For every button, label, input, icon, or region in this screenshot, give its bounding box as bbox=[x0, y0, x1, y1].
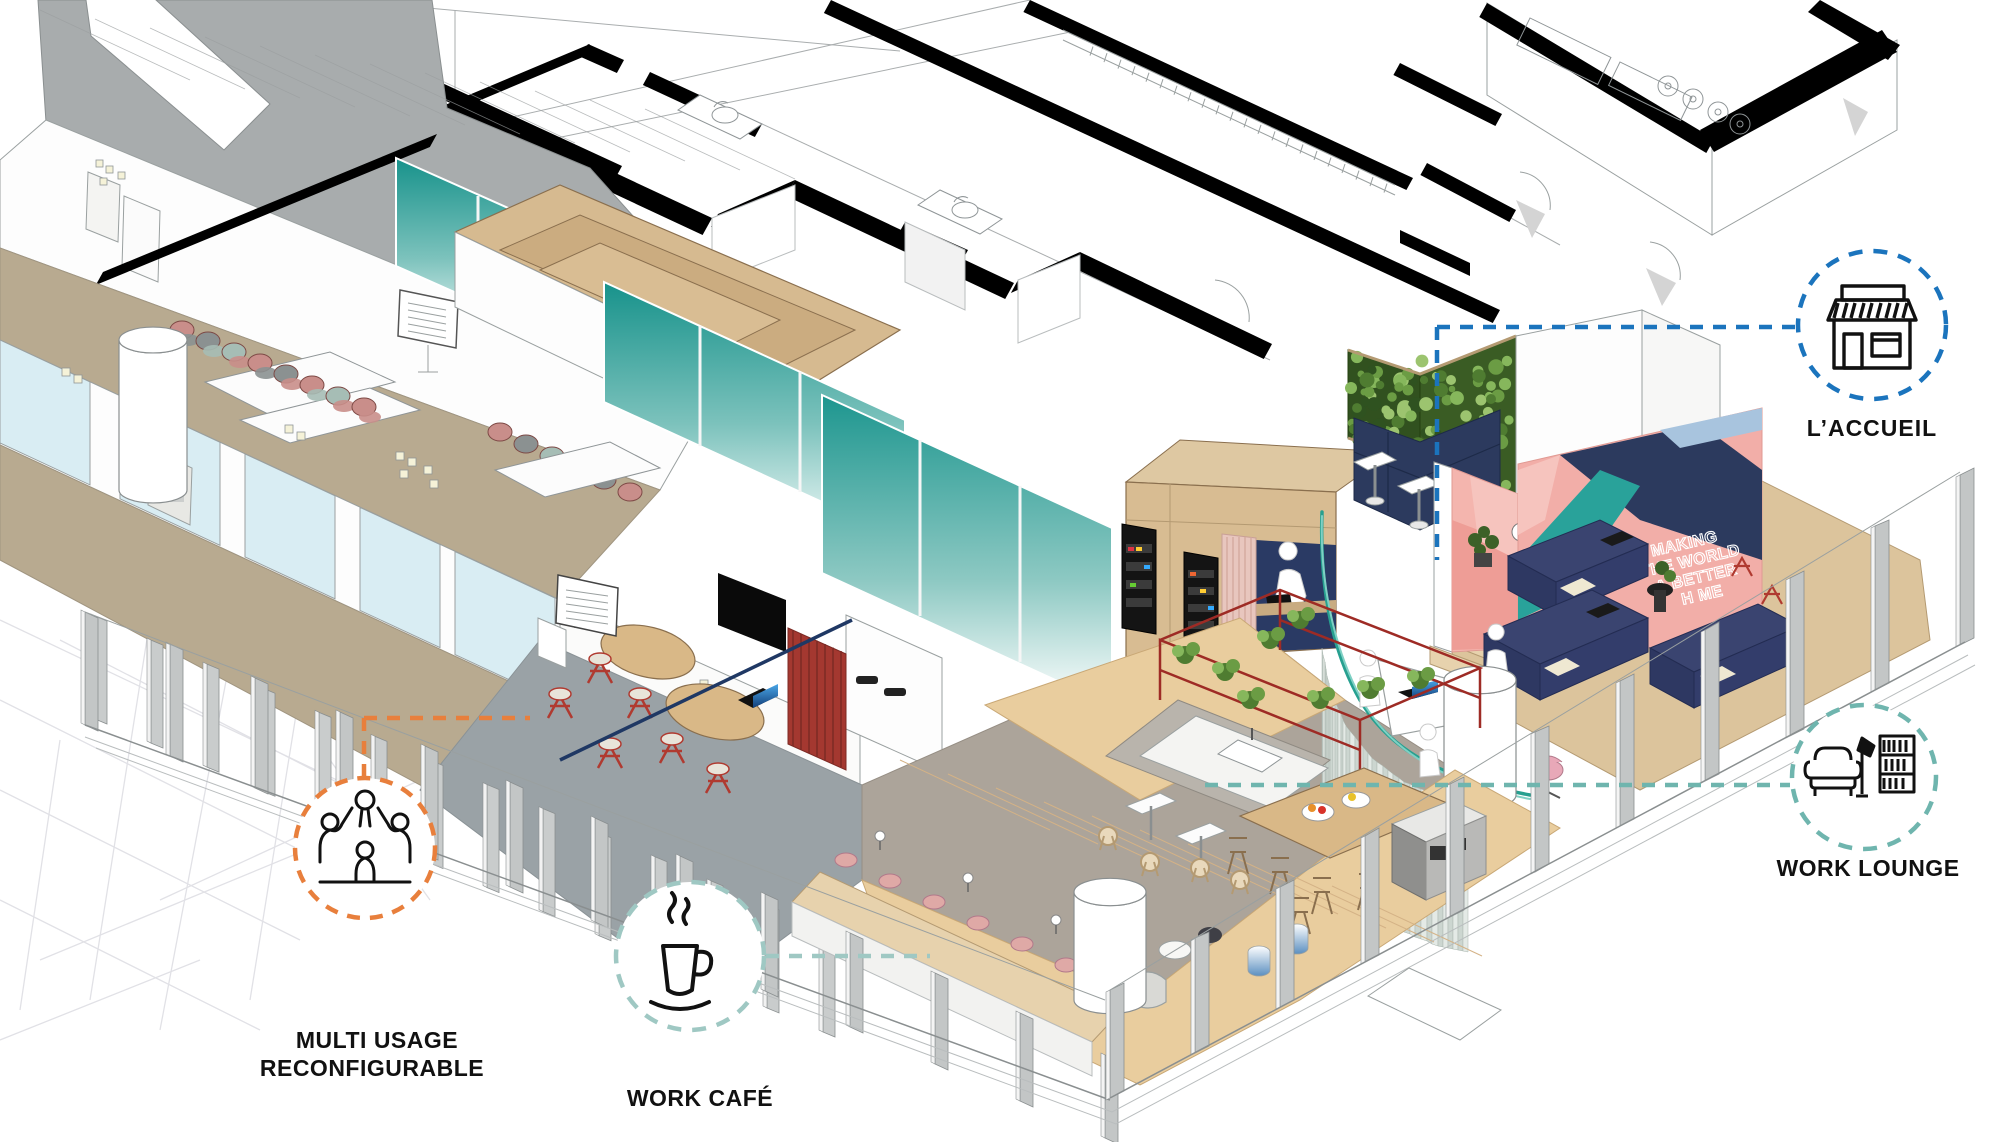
svg-text:RECONFIGURABLE: RECONFIGURABLE bbox=[260, 1055, 484, 1081]
svg-text:L’ACCUEIL: L’ACCUEIL bbox=[1807, 415, 1937, 441]
svg-text:WORK CAFÉ: WORK CAFÉ bbox=[627, 1084, 773, 1111]
svg-text:WORK LOUNGE: WORK LOUNGE bbox=[1776, 855, 1959, 881]
svg-text:MULTI USAGE: MULTI USAGE bbox=[296, 1027, 458, 1053]
